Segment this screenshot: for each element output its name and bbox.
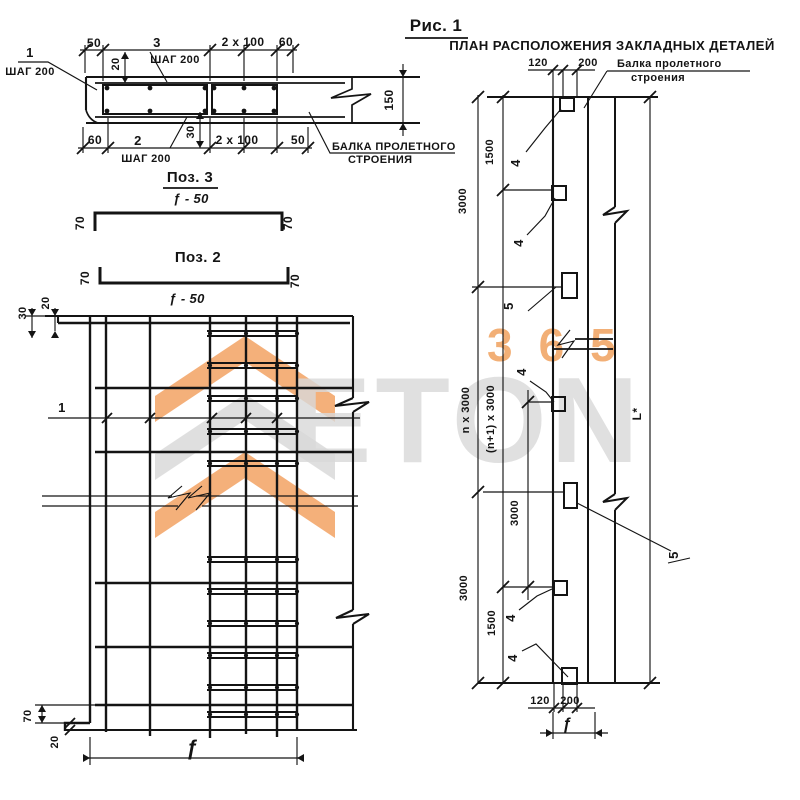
- dim-50-bottom: 50: [291, 133, 305, 147]
- plan-dim-3000-mid: 3000: [509, 500, 521, 526]
- mesh-axis-label: 1: [58, 400, 66, 415]
- detail3-title: Поз. 3: [167, 169, 213, 186]
- pos3-step: ШАГ 200: [150, 54, 199, 66]
- plan-beam-label-line2: строения: [631, 72, 685, 84]
- beam-label-line1: БАЛКА ПРОЛЕТНОГО: [332, 141, 456, 153]
- cross-section-view: 1 ШАГ 200 50 3 ШАГ 200 2 x 100 60 20 150…: [5, 35, 455, 166]
- plan-dim-3000-top: 3000: [457, 188, 469, 214]
- pos5-label: 5: [666, 551, 681, 559]
- plan-beam-label-line1: Балка пролетного: [617, 58, 722, 70]
- embedded-parts-plan: Рис. 1 ПЛАН РАСПОЛОЖЕНИЯ ЗАКЛАДНЫХ ДЕТАЛ…: [405, 16, 775, 739]
- plan-dim-120-top: 120: [528, 57, 548, 69]
- plan-dim-1500-top: 1500: [484, 139, 496, 165]
- detail-pos2: Поз. 2 70 70 ƒ - 50: [78, 249, 302, 306]
- pos4-label: 4: [511, 239, 526, 247]
- beam-label-line2: СТРОЕНИЯ: [348, 154, 412, 166]
- pos4-label: 4: [505, 654, 520, 662]
- pos3-number: 3: [153, 35, 161, 50]
- mesh-plan-view: 20 30 1 70 20 ƒ: [17, 296, 369, 765]
- detail2-length: ƒ - 50: [169, 291, 205, 306]
- dim-60-top: 60: [279, 35, 293, 49]
- mesh-dim-20-bottom: 20: [49, 735, 61, 748]
- rebar-dots: [105, 86, 277, 114]
- plan-title: ПЛАН РАСПОЛОЖЕНИЯ ЗАКЛАДНЫХ ДЕТАЛЕЙ: [449, 38, 774, 53]
- detail3-length: ƒ - 50: [173, 191, 209, 206]
- plan-dim-200-top: 200: [578, 57, 598, 69]
- dim-50-top: 50: [87, 36, 101, 50]
- embedded-plates: [552, 98, 577, 684]
- pos4-label: 4: [503, 614, 518, 622]
- detail2-title: Поз. 2: [175, 249, 221, 266]
- dim-150-height: 150: [382, 89, 396, 110]
- mesh-dim-30-top: 30: [17, 306, 29, 319]
- detail2-end-right: 70: [288, 274, 302, 288]
- plan-dim-1500-bottom: 1500: [486, 610, 498, 636]
- dim-20-cover: 20: [110, 57, 122, 70]
- pos4-label: 4: [508, 159, 523, 167]
- dim-60-bottom: 60: [88, 133, 102, 147]
- detail2-end-left: 70: [78, 271, 92, 285]
- plan-dim-n-3000: n x 3000: [460, 387, 472, 434]
- pos4-label: 4: [514, 368, 529, 376]
- plan-dim-3000-bottom: 3000: [458, 575, 470, 601]
- mesh-dim-70-bottom: 70: [22, 709, 34, 722]
- plan-dim-total-L: L*: [630, 408, 644, 421]
- pos5-label: 5: [501, 302, 516, 310]
- detail3-end-right: 70: [281, 216, 295, 230]
- plan-dim-120-bottom: 120: [530, 695, 550, 707]
- mesh-dim-20-top: 20: [40, 296, 52, 309]
- figure-title: Рис. 1: [410, 16, 463, 35]
- plan-dim-200-bottom: 200: [560, 695, 580, 707]
- plan-dim-n1-3000: (n+1) x 3000: [485, 385, 497, 453]
- drawing-sheet: 365 ETON: [0, 0, 800, 800]
- pos2-step: ШАГ 200: [121, 153, 170, 165]
- dim-2x100-top: 2 x 100: [222, 35, 265, 49]
- technical-drawing: 1 ШАГ 200 50 3 ШАГ 200 2 x 100 60 20 150…: [0, 0, 800, 800]
- pos1-number: 1: [26, 45, 34, 60]
- dim-30-cover: 30: [185, 125, 197, 138]
- pos2-number: 2: [134, 133, 142, 148]
- pos1-step: ШАГ 200: [5, 66, 54, 78]
- dim-2x100-bottom: 2 x 100: [216, 133, 259, 147]
- detail3-end-left: 70: [73, 216, 87, 230]
- mesh-width-f: ƒ: [186, 737, 198, 760]
- plan-width-f: ƒ: [562, 716, 571, 733]
- detail-pos3: Поз. 3 ƒ - 50 70 70: [73, 169, 295, 231]
